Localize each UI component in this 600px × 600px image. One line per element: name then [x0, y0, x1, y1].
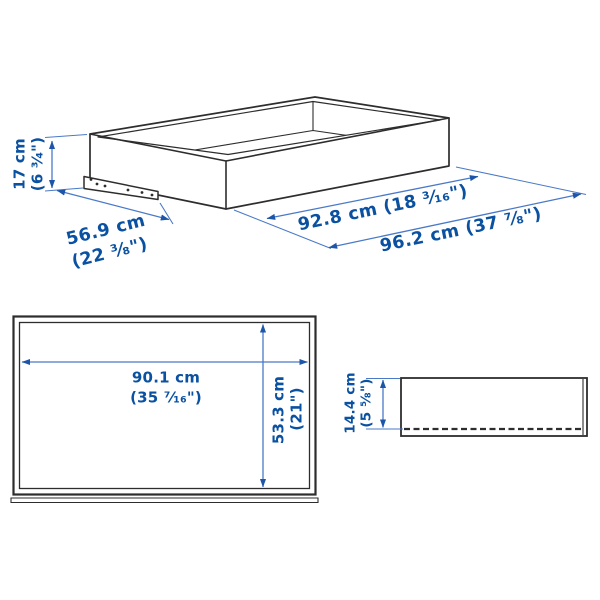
- product-dimension-diagram: 17 cm (6 ³⁄₄") 56.9 cm (22 ³⁄₈") 92.8 cm…: [0, 0, 600, 600]
- side-view-drawing: [401, 378, 587, 436]
- front-inner-height-label-cm: 53.3 cm: [272, 376, 287, 444]
- height-dimension-label-cm: 17 cm: [13, 138, 28, 190]
- front-inner-width-label-inches: (35 ⁷⁄₁₆"): [130, 391, 202, 406]
- right-extension-line: [456, 167, 586, 195]
- drawer-3d-drawing: [84, 97, 449, 209]
- height-dimension-label-inches: (6 ³⁄₄"): [31, 137, 46, 191]
- front-inner-height-label-inches: (21"): [290, 387, 305, 430]
- front-inner-width-label-cm: 90.1 cm: [132, 371, 200, 386]
- front-view-base-strip: [11, 498, 318, 503]
- side-front-height-label-inches: (5 ⁵⁄₈"): [360, 378, 374, 427]
- height-dimension-arrow: [45, 135, 87, 192]
- diagram-line-art: [0, 0, 600, 600]
- side-front-height-label-cm: 14.4 cm: [344, 372, 358, 433]
